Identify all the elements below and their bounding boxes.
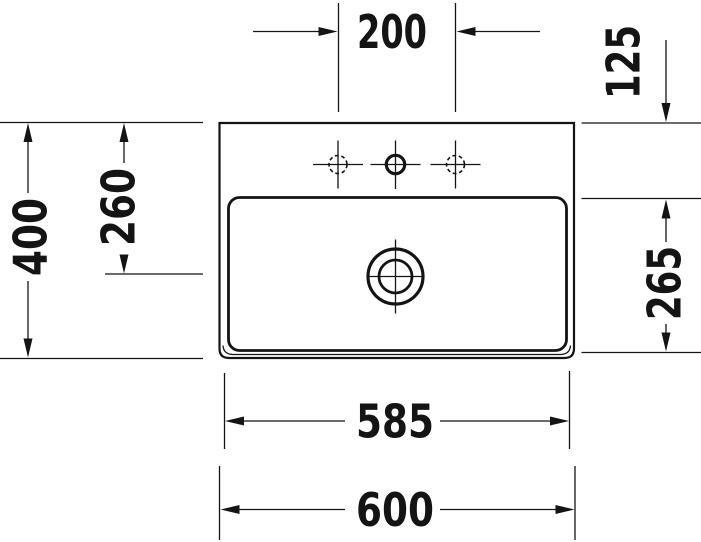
crosshair xyxy=(431,141,481,189)
crosshair xyxy=(313,141,363,189)
arrowhead-down-icon xyxy=(662,103,671,122)
dimension-label-585: 585 xyxy=(356,395,434,449)
arrowhead-right-icon xyxy=(319,27,338,36)
basin-inner-bowl xyxy=(229,198,567,351)
dimension-125: 125 xyxy=(597,25,671,122)
washbasin-dimension-drawing: 200 125 265 400 260 xyxy=(0,0,701,542)
dimension-200: 200 xyxy=(253,5,540,59)
faucet-holes xyxy=(313,141,481,190)
arrowhead-up-icon xyxy=(24,123,33,142)
faucet-hole-center-icon xyxy=(371,141,421,190)
dimension-265: 265 xyxy=(638,200,692,352)
dimension-600: 600 xyxy=(221,483,575,537)
crosshair xyxy=(371,141,421,190)
faucet-hole-left-optional-icon xyxy=(313,141,363,189)
dimension-label-125: 125 xyxy=(597,25,651,99)
faucet-hole-right-optional-icon xyxy=(431,141,481,189)
washbasin-outline xyxy=(220,123,575,358)
dimension-585: 585 xyxy=(225,395,569,449)
dimension-label-260: 260 xyxy=(92,168,146,246)
dimension-label-400: 400 xyxy=(4,198,58,276)
dimension-label-265: 265 xyxy=(638,246,692,320)
arrowhead-left-icon xyxy=(221,505,240,514)
arrowhead-right-icon xyxy=(550,417,569,426)
drain-outlet-icon xyxy=(368,240,424,314)
arrowhead-down-icon xyxy=(662,333,671,352)
arrowhead-left-icon xyxy=(225,417,244,426)
arrowhead-down-icon xyxy=(120,255,129,274)
dimension-label-200: 200 xyxy=(357,5,427,59)
arrowhead-up-icon xyxy=(662,200,671,219)
dimension-label-600: 600 xyxy=(356,483,434,537)
arrowhead-down-icon xyxy=(24,339,33,358)
arrowhead-right-icon xyxy=(556,505,575,514)
arrowhead-up-icon xyxy=(120,123,129,142)
technical-drawing-canvas: 200 125 265 400 260 xyxy=(0,0,701,542)
arrowhead-left-icon xyxy=(457,27,476,36)
dimension-400: 400 xyxy=(4,123,58,358)
basin-outer-edge xyxy=(220,123,575,358)
dimension-260: 260 xyxy=(92,123,146,274)
